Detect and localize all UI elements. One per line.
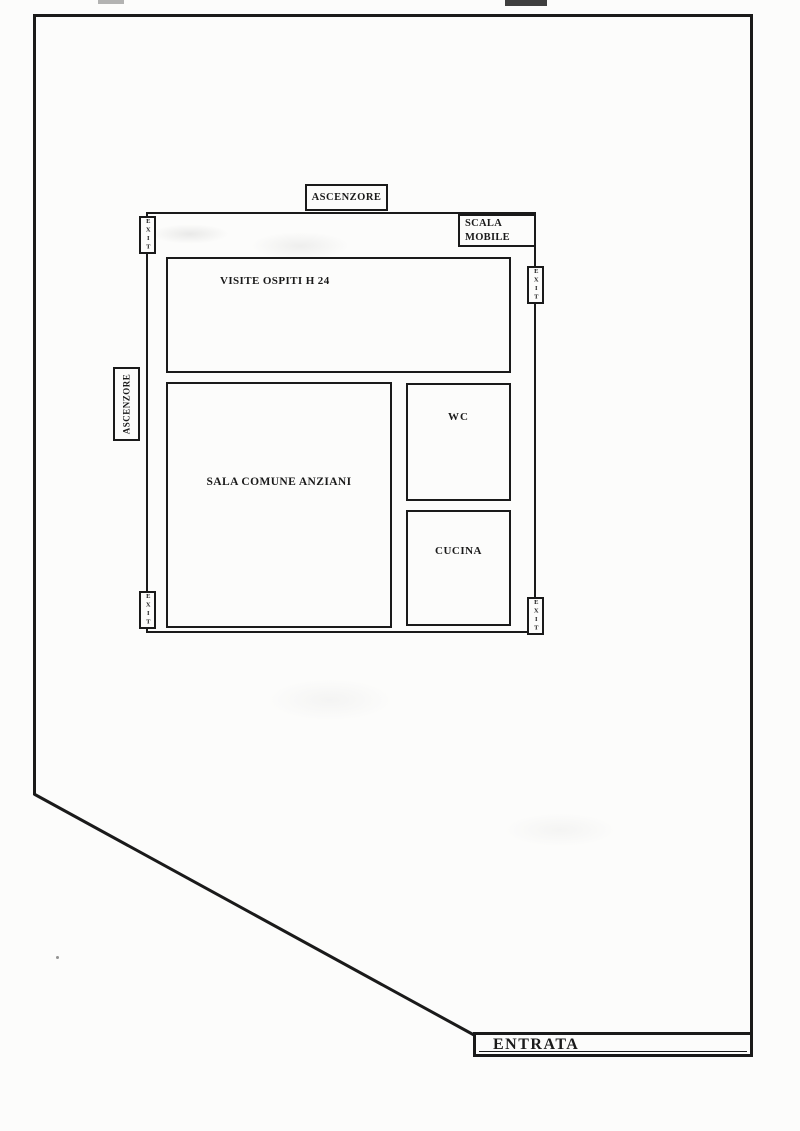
elevator-top-label: ASCENZORE — [312, 192, 382, 203]
exit-label: EXIT — [532, 268, 539, 302]
elevator-box-left: ASCENZORE — [113, 367, 140, 441]
room-wc-label: WC — [408, 411, 509, 423]
elevator-box-top: ASCENZORE — [305, 184, 388, 211]
exit-label: EXIT — [144, 593, 151, 627]
escalator-label: SCALA MOBILE — [460, 216, 534, 244]
floor-plan-page: ASCENZORE SCALA MOBILE ASCENZORE VISITE … — [0, 0, 800, 1131]
exit-box-right-top: EXIT — [527, 266, 544, 304]
exit-box-bottom-left: EXIT — [139, 591, 156, 629]
diagonal-wall — [34, 794, 474, 1035]
room-sala-comune: SALA COMUNE ANZIANI — [166, 382, 392, 628]
room-sala-label: SALA COMUNE ANZIANI — [168, 476, 390, 488]
room-cucina: CUCINA — [406, 510, 511, 626]
room-wc: WC — [406, 383, 511, 501]
exit-label: EXIT — [532, 599, 539, 633]
elevator-left-label: ASCENZORE — [122, 374, 132, 435]
exit-box-top-left: EXIT — [139, 216, 156, 254]
entrance-box: ENTRATA — [473, 1032, 753, 1057]
room-cucina-label: CUCINA — [408, 545, 509, 557]
room-visite-ospiti: VISITE OSPITI H 24 — [166, 257, 511, 373]
exit-box-bottom-right: EXIT — [527, 597, 544, 635]
entrance-underline — [479, 1051, 747, 1052]
room-visite-label: VISITE OSPITI H 24 — [220, 275, 330, 287]
escalator-box: SCALA MOBILE — [458, 214, 536, 247]
exit-label: EXIT — [144, 218, 151, 252]
